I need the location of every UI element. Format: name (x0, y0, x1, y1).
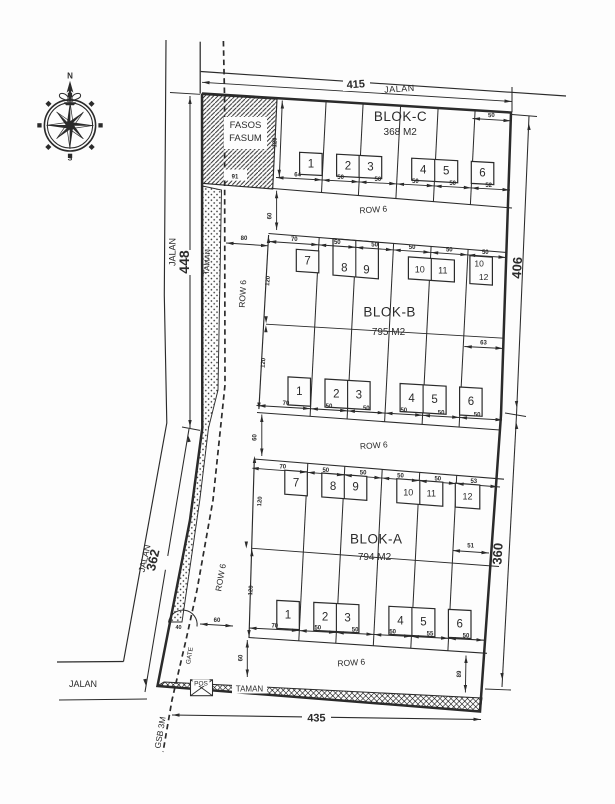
svg-text:50: 50 (412, 179, 419, 185)
svg-text:120: 120 (248, 585, 255, 596)
svg-text:9: 9 (363, 265, 369, 277)
svg-text:8: 8 (341, 263, 347, 275)
svg-text:2: 2 (333, 389, 339, 401)
svg-text:10: 10 (403, 488, 413, 498)
svg-text:50: 50 (337, 175, 344, 181)
svg-text:120: 120 (257, 496, 264, 507)
svg-text:63: 63 (480, 341, 487, 347)
svg-text:3: 3 (356, 389, 362, 401)
svg-text:50: 50 (375, 177, 382, 183)
svg-text:91: 91 (232, 175, 239, 181)
svg-text:10: 10 (474, 258, 484, 268)
svg-text:5: 5 (431, 394, 437, 406)
svg-text:50: 50 (397, 473, 404, 479)
svg-text:BLOK-A: BLOK-A (350, 532, 403, 547)
svg-text:TAMAN: TAMAN (236, 685, 264, 694)
svg-text:N: N (67, 71, 73, 80)
svg-text:10: 10 (415, 265, 425, 275)
svg-text:4: 4 (408, 393, 415, 405)
svg-text:40: 40 (175, 625, 181, 631)
svg-text:406: 406 (509, 257, 525, 279)
svg-text:50: 50 (389, 630, 396, 636)
svg-text:50: 50 (488, 113, 496, 119)
svg-text:7: 7 (304, 256, 310, 268)
svg-text:ROW 6: ROW 6 (359, 204, 388, 216)
svg-text:TAMAN: TAMAN (202, 249, 213, 275)
svg-text:3: 3 (367, 161, 373, 173)
svg-text:JALAN: JALAN (69, 679, 97, 689)
svg-text:70: 70 (291, 237, 298, 243)
svg-text:448: 448 (176, 250, 192, 274)
svg-text:50: 50 (434, 476, 441, 482)
svg-text:FASUM: FASUM (229, 133, 262, 144)
svg-text:BLOK-B: BLOK-B (363, 305, 416, 320)
svg-text:60: 60 (253, 434, 259, 441)
svg-text:120: 120 (265, 275, 272, 286)
svg-text:6: 6 (456, 618, 462, 630)
svg-text:12: 12 (479, 272, 489, 282)
svg-text:51: 51 (467, 543, 474, 549)
svg-text:4: 4 (420, 165, 427, 177)
svg-text:50: 50 (334, 240, 341, 246)
svg-text:POS: POS (194, 681, 208, 688)
svg-text:ROW 6: ROW 6 (237, 279, 248, 308)
svg-text:6: 6 (468, 396, 474, 408)
svg-text:50: 50 (352, 628, 359, 634)
svg-text:1: 1 (308, 158, 314, 170)
svg-text:50: 50 (438, 410, 445, 416)
svg-text:415: 415 (346, 78, 365, 91)
svg-text:50: 50 (482, 250, 489, 256)
svg-text:368 M2: 368 M2 (384, 127, 418, 138)
svg-text:70: 70 (271, 623, 278, 629)
svg-text:9: 9 (352, 482, 358, 494)
svg-text:4: 4 (397, 616, 404, 628)
svg-text:60: 60 (214, 618, 221, 624)
svg-text:50: 50 (474, 413, 481, 419)
svg-text:S: S (68, 156, 73, 163)
svg-text:5: 5 (443, 166, 449, 178)
svg-text:53: 53 (470, 479, 477, 485)
svg-text:ROW 6: ROW 6 (360, 439, 389, 451)
svg-text:7: 7 (293, 478, 299, 490)
svg-text:6: 6 (479, 168, 485, 180)
svg-text:11: 11 (438, 266, 447, 276)
svg-text:70: 70 (279, 465, 286, 471)
svg-text:794 M2: 794 M2 (358, 552, 392, 563)
svg-text:50: 50 (449, 181, 456, 187)
svg-text:BLOK-C: BLOK-C (374, 109, 427, 124)
svg-text:120: 120 (261, 357, 268, 368)
svg-text:64: 64 (294, 173, 301, 179)
svg-text:360: 360 (489, 542, 505, 565)
svg-text:89: 89 (457, 670, 463, 677)
svg-text:50: 50 (463, 633, 470, 639)
svg-text:120: 120 (272, 137, 278, 148)
svg-text:2: 2 (345, 161, 351, 173)
svg-text:1: 1 (296, 386, 302, 398)
svg-text:ROW 6: ROW 6 (337, 657, 366, 669)
svg-text:70: 70 (283, 401, 290, 407)
svg-text:52: 52 (485, 183, 492, 189)
svg-text:50: 50 (326, 404, 333, 410)
svg-text:80: 80 (241, 236, 248, 242)
svg-text:FASOS: FASOS (230, 120, 262, 131)
svg-text:50: 50 (371, 243, 378, 249)
svg-text:50: 50 (314, 626, 321, 632)
svg-text:11: 11 (427, 488, 436, 498)
svg-text:5: 5 (420, 617, 426, 629)
svg-text:50: 50 (322, 468, 329, 474)
svg-text:1: 1 (285, 610, 291, 622)
svg-text:50: 50 (360, 471, 367, 477)
svg-text:2: 2 (322, 612, 328, 624)
svg-text:12: 12 (462, 492, 472, 502)
svg-text:3: 3 (344, 613, 350, 625)
svg-text:50: 50 (409, 245, 416, 251)
svg-text:50: 50 (446, 248, 453, 254)
svg-text:50: 50 (363, 406, 370, 412)
svg-text:60: 60 (238, 654, 244, 661)
svg-text:435: 435 (307, 712, 326, 724)
svg-text:8: 8 (330, 481, 336, 493)
svg-text:55: 55 (427, 631, 434, 637)
svg-text:60: 60 (267, 212, 273, 219)
svg-text:50: 50 (400, 408, 407, 414)
svg-text:JALAN: JALAN (384, 83, 415, 95)
